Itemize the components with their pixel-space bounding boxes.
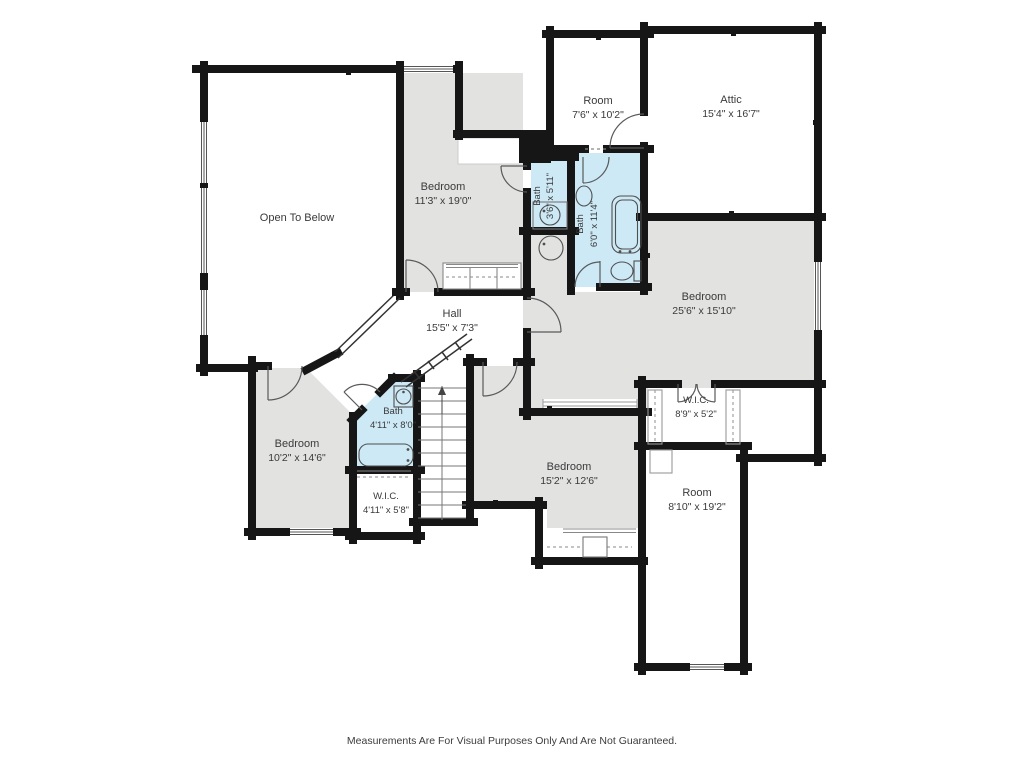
label-attic-dims: 15'4" x 16'7" [702,108,760,120]
window [404,65,453,73]
open-to-below-railing [331,290,400,358]
label-wic-left-name: W.I.C. [373,491,399,502]
label-bedroom-left-name: Bedroom [275,438,320,450]
window [200,122,208,183]
label-bedroom-1-dims: 11'3" x 19'0" [415,195,472,207]
label-room-right-name: Room [682,487,711,499]
master-south-band [543,399,637,409]
window [200,188,208,273]
label-attic-name: Attic [720,94,742,106]
label-bath-small-dims: 3'6" x 5'11" [545,173,556,219]
label-wic-right-dims: 8'9" x 5'2" [675,409,717,420]
label-hall-dims: 15'5" x 7'3" [426,322,478,334]
window [814,262,822,330]
label-room-top-dims: 7'6" x 10'2" [572,109,624,121]
label-room-right-dims: 8'10" x 19'2" [668,501,726,513]
label-bath-large-name: Bath [575,214,586,234]
railing-layer [331,290,472,387]
label-bedroom-1-name: Bedroom [421,181,466,193]
stairs-up-arrow [438,386,446,414]
closet [547,529,636,557]
floorplan-page: Open To Below Bedroom 11'3" x 19'0" Room… [0,0,1024,768]
label-bath-large-dims: 6'0" x 11'4" [589,201,600,247]
label-bath-small-name: Bath [532,186,543,206]
label-bedroom-left-dims: 10'2" x 14'6" [268,452,326,464]
label-wic-right-name: W.I.C. [683,395,709,406]
closet [443,263,521,289]
window [290,528,333,536]
label-hall-name: Hall [443,308,462,320]
shelf-box [650,450,672,473]
bedroom-1-alcove [458,138,523,164]
master-bedroom-west-floor [523,292,648,416]
label-bedroom-master-name: Bedroom [682,291,727,303]
label-room-top-name: Room [583,95,612,107]
label-bath-hall-name: Bath [383,406,403,417]
disclaimer-text: Measurements Are For Visual Purposes Onl… [347,735,677,747]
label-bedroom-bottom-dims: 15'2" x 12'6" [540,475,598,487]
label-bath-hall-dims: 4'11" x 8'0" [370,420,416,431]
window [690,663,724,671]
staircase [418,386,466,520]
label-open-to-below: Open To Below [260,212,334,224]
label-bedroom-master-dims: 25'6" x 15'10" [672,305,736,317]
label-wic-left-dims: 4'11" x 5'8" [363,505,409,516]
label-bedroom-bottom-name: Bedroom [547,461,592,473]
vanity-nook-floor [531,235,571,292]
window [200,290,208,335]
floorplan-canvas: Open To Below Bedroom 11'3" x 19'0" Room… [0,0,1024,768]
